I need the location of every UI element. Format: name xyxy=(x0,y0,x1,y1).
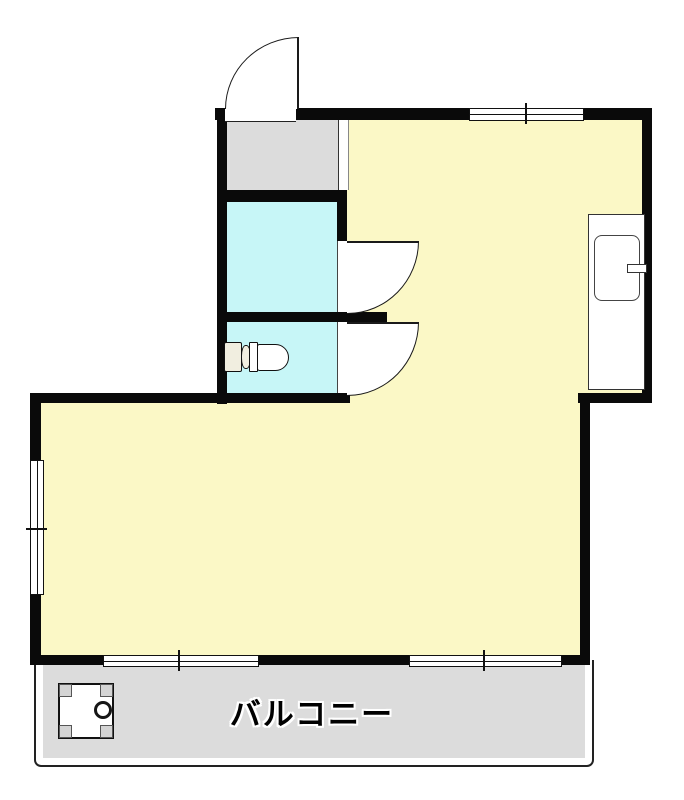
opening-entrance-threshold xyxy=(225,108,296,122)
balcony-label: バルコニー xyxy=(34,689,590,734)
window-top-tick xyxy=(525,103,527,124)
area-living-room xyxy=(41,400,580,656)
wall-living-right xyxy=(580,393,590,665)
window-bottom-left-tick xyxy=(178,650,180,671)
wall-entry-bath-divider xyxy=(217,190,347,202)
opening-entry-step xyxy=(338,120,349,190)
window-bottom-right-mullion xyxy=(410,661,561,662)
wall-living-top xyxy=(30,393,350,403)
window-left-tick xyxy=(26,528,47,530)
wall-bath-partition-upper xyxy=(337,190,347,241)
window-bottom-left xyxy=(103,655,259,667)
wall-bath-toilet-divider xyxy=(217,312,387,322)
floorplan-canvas: バルコニー xyxy=(0,0,684,800)
window-bottom-right xyxy=(409,655,562,667)
toilet-bowl xyxy=(257,344,289,371)
entrance-door-swing xyxy=(225,37,299,109)
toilet-tank xyxy=(224,342,242,372)
kitchen-faucet xyxy=(627,264,647,273)
window-bottom-left-mullion xyxy=(104,661,258,662)
window-bottom-right-tick xyxy=(483,650,485,671)
area-entry xyxy=(227,118,338,192)
area-bathroom xyxy=(227,200,337,314)
